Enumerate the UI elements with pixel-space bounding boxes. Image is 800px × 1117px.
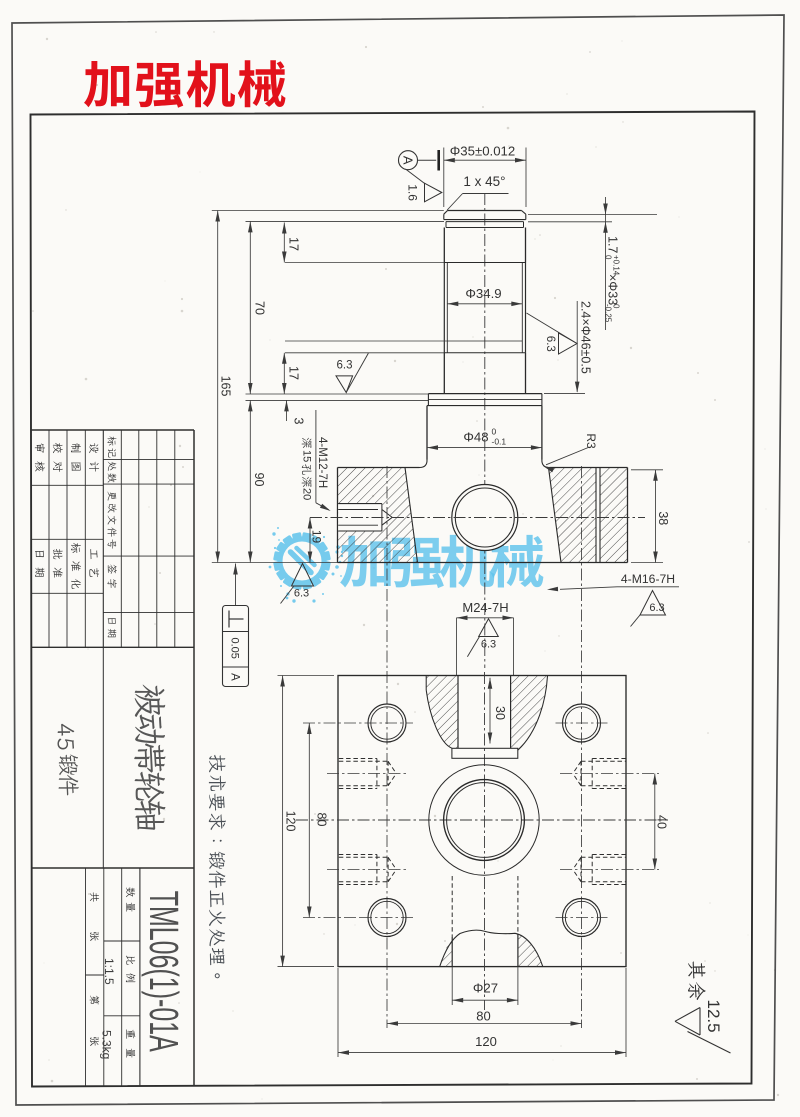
svg-text:80: 80 [476,1008,490,1023]
svg-text:0.05: 0.05 [229,638,241,659]
svg-text:19: 19 [310,530,324,544]
svg-text:R3: R3 [584,433,598,449]
svg-text:38: 38 [656,511,670,525]
svg-text:3: 3 [292,418,306,425]
svg-text:5.3kg: 5.3kg [100,1030,114,1059]
svg-text:0: 0 [603,255,612,260]
svg-text:17: 17 [287,366,301,380]
svg-text:A: A [228,673,240,681]
svg-text:40: 40 [655,815,669,829]
svg-text:A: A [400,156,415,165]
svg-text:90: 90 [252,473,266,487]
svg-text:0: 0 [492,427,497,437]
svg-text:-0.1: -0.1 [492,437,507,447]
svg-text:120: 120 [475,1034,497,1049]
svg-text:Φ48: Φ48 [463,430,488,445]
svg-text:M24-7H: M24-7H [462,600,508,615]
svg-text:165: 165 [219,376,233,397]
svg-text:6.3: 6.3 [544,336,556,352]
svg-text:6.3: 6.3 [337,360,353,372]
svg-text:Φ35±0.012: Φ35±0.012 [450,143,515,158]
svg-text:15: 15 [300,450,312,462]
svg-text:Φ27: Φ27 [473,981,498,996]
svg-text:4-M12-7H: 4-M12-7H [316,437,328,488]
svg-text:70: 70 [253,301,267,315]
svg-text:120: 120 [284,811,298,832]
svg-text:6.3: 6.3 [481,639,496,651]
svg-text:17: 17 [287,237,301,251]
svg-text:6.3: 6.3 [294,588,309,600]
svg-text:80: 80 [315,813,329,827]
svg-text:TML06(1)-01A: TML06(1)-01A [140,891,185,1053]
svg-text:1.7: 1.7 [605,236,619,253]
svg-text:1:1.5: 1:1.5 [102,958,116,985]
svg-text:1 x 45°: 1 x 45° [463,174,505,189]
svg-text:20: 20 [300,488,312,500]
svg-text:12.5: 12.5 [704,1000,723,1033]
svg-text:Φ34.9: Φ34.9 [465,286,501,301]
svg-text:4-M16-7H: 4-M16-7H [621,572,675,586]
svg-text:6.3: 6.3 [649,602,664,614]
svg-text:2.4×Φ46±0.5: 2.4×Φ46±0.5 [579,301,593,374]
svg-text:-0.25: -0.25 [603,304,612,323]
svg-text:30: 30 [493,706,507,720]
svg-text:×Φ33: ×Φ33 [605,274,619,305]
svg-text:1.6: 1.6 [406,184,420,201]
